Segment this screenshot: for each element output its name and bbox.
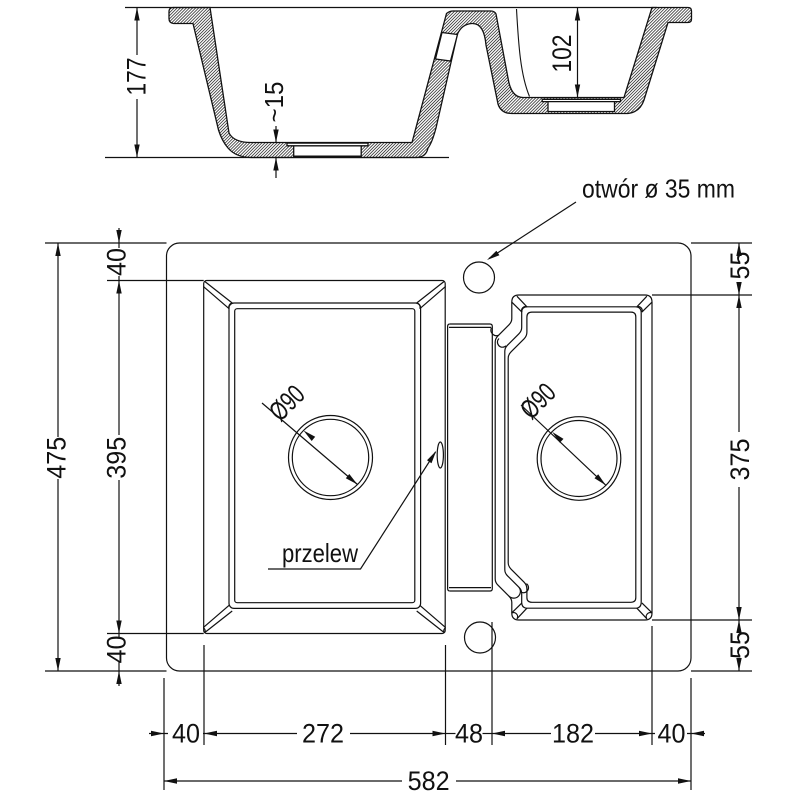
svg-text:177: 177 <box>122 58 152 96</box>
svg-text:Ø90: Ø90 <box>263 379 310 426</box>
svg-text:48: 48 <box>455 719 483 749</box>
svg-text:przelew: przelew <box>282 538 358 568</box>
svg-text:55: 55 <box>725 252 755 280</box>
svg-text:375: 375 <box>725 439 755 481</box>
svg-text:Ø90: Ø90 <box>514 377 561 424</box>
svg-text:40: 40 <box>658 719 686 749</box>
svg-text:102: 102 <box>547 35 577 73</box>
svg-text:182: 182 <box>552 719 594 749</box>
svg-text:otwór ø 35 mm: otwór ø 35 mm <box>582 174 735 204</box>
svg-text:582: 582 <box>408 766 450 796</box>
svg-text:475: 475 <box>42 437 72 479</box>
svg-text:40: 40 <box>102 636 132 664</box>
svg-text:~15: ~15 <box>259 82 289 123</box>
svg-text:40: 40 <box>102 248 132 276</box>
svg-text:395: 395 <box>102 437 132 479</box>
svg-text:55: 55 <box>725 631 755 659</box>
svg-text:272: 272 <box>302 719 344 749</box>
svg-text:40: 40 <box>172 719 200 749</box>
